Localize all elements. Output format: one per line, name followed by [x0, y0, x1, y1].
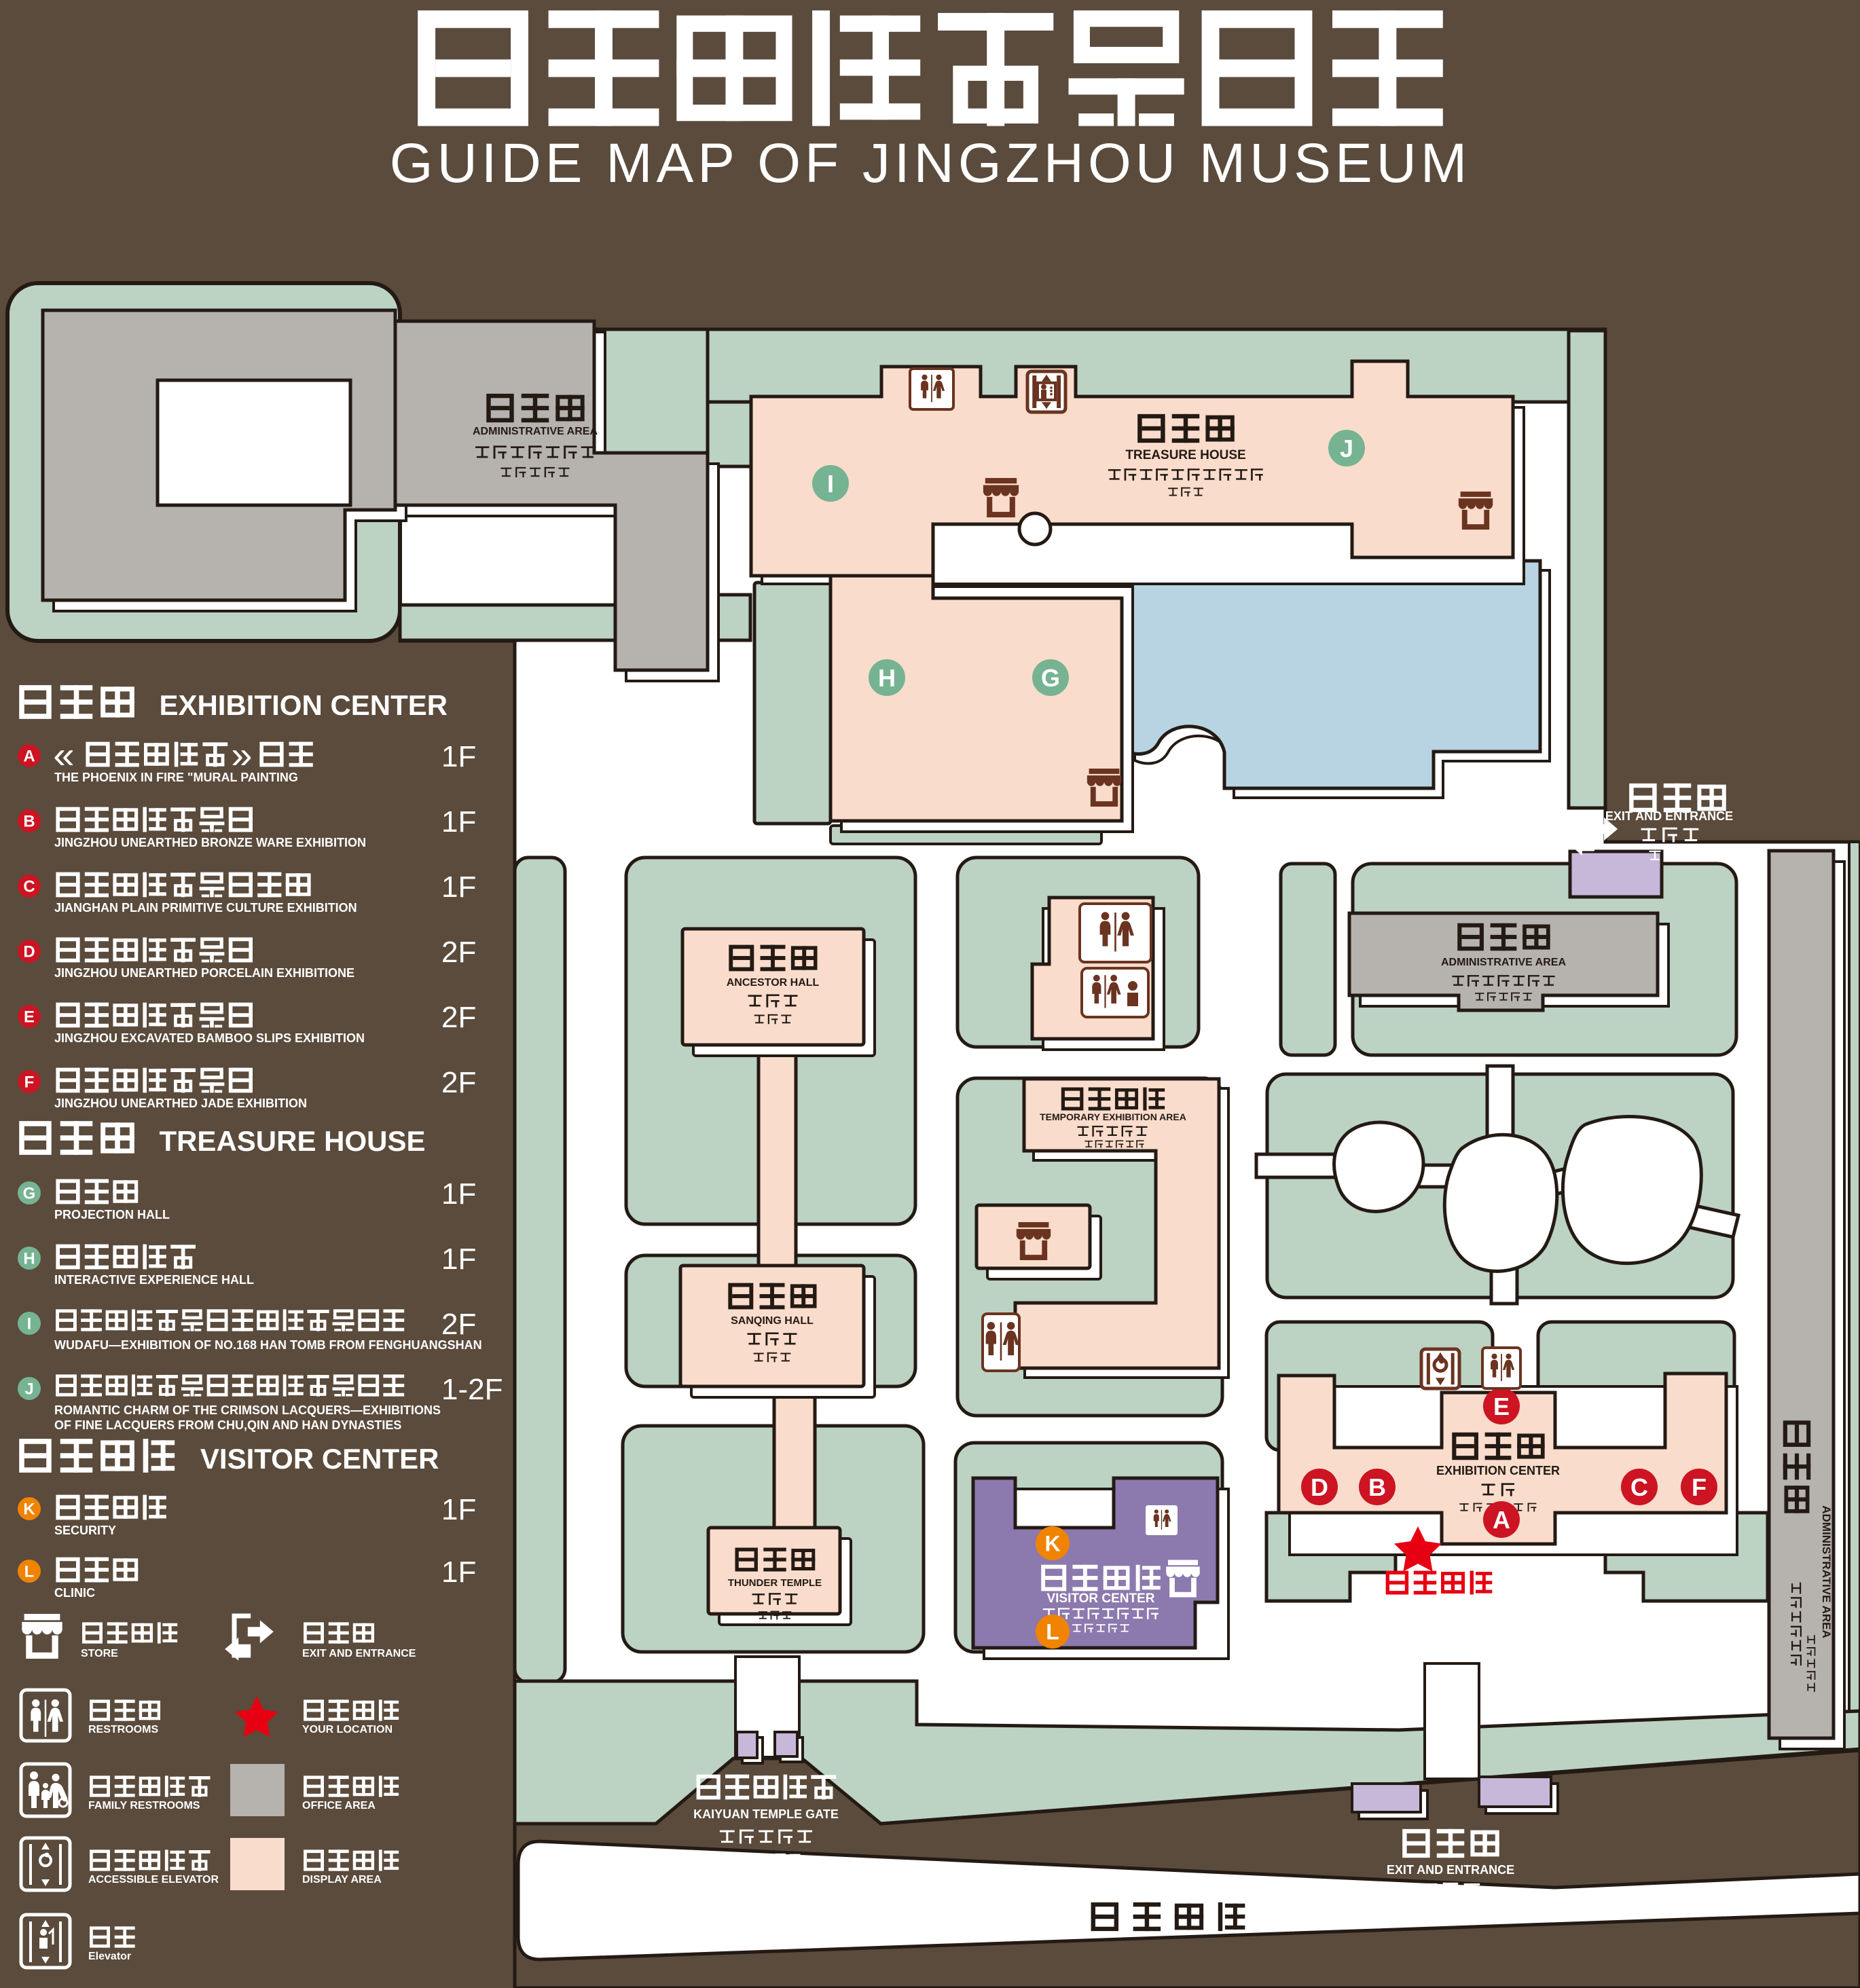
svg-text:2F: 2F	[441, 936, 476, 969]
svg-text:TREASURE HOUSE: TREASURE HOUSE	[1125, 448, 1245, 462]
svg-text:1F: 1F	[441, 805, 476, 839]
svg-text:C: C	[23, 878, 35, 896]
svg-text:1F: 1F	[441, 740, 476, 773]
svg-text:H: H	[878, 664, 896, 692]
svg-text:C: C	[1630, 1473, 1648, 1501]
svg-text:D: D	[1311, 1473, 1328, 1501]
svg-text:JINGZHOU UNEARTHED JADE EXHIBI: JINGZHOU UNEARTHED JADE EXHIBITION	[54, 1097, 307, 1110]
svg-text:E: E	[1493, 1393, 1510, 1420]
svg-text:F: F	[24, 1073, 35, 1092]
svg-text:FAMILY RESTROOMS: FAMILY RESTROOMS	[88, 1800, 200, 1811]
svg-text:EXIT AND ENTRANCE: EXIT AND ENTRANCE	[1387, 1863, 1514, 1877]
svg-text:1F: 1F	[441, 870, 476, 904]
svg-text:EXIT AND ENTRANCE: EXIT AND ENTRANCE	[1605, 809, 1733, 823]
svg-text:1F: 1F	[441, 1242, 476, 1276]
svg-text:CLINIC: CLINIC	[54, 1586, 95, 1600]
svg-text:G: G	[23, 1185, 36, 1203]
svg-text:JINGZHOU EXCAVATED BAMBOO SLIP: JINGZHOU EXCAVATED BAMBOO SLIPS EXHIBITI…	[54, 1031, 365, 1045]
svg-text:I: I	[827, 470, 834, 498]
svg-text:PROJECTION HALL: PROJECTION HALL	[54, 1208, 170, 1221]
svg-text:1F: 1F	[441, 1177, 476, 1211]
svg-text:RESTROOMS: RESTROOMS	[88, 1724, 158, 1735]
svg-text:A: A	[1493, 1506, 1510, 1534]
svg-text:YOUR LOCATION: YOUR LOCATION	[302, 1724, 393, 1735]
svg-text:VISITOR CENTER: VISITOR CENTER	[1046, 1591, 1154, 1606]
svg-text:2F: 2F	[441, 1066, 476, 1099]
svg-text:2F: 2F	[441, 1308, 476, 1341]
svg-text:J: J	[24, 1380, 33, 1399]
svg-text:1-2F: 1-2F	[441, 1373, 503, 1406]
svg-text:KAIYUAN TEMPLE GATE: KAIYUAN TEMPLE GATE	[693, 1807, 839, 1821]
svg-text:SANQING HALL: SANQING HALL	[731, 1315, 814, 1327]
svg-text:ROMANTIC CHARM OF THE CRIMSON: ROMANTIC CHARM OF THE CRIMSON LACQUERS—E…	[54, 1403, 441, 1417]
svg-text:TEMPORARY EXHIBITION AREA: TEMPORARY EXHIBITION AREA	[1040, 1111, 1186, 1122]
svg-text:DISPLAY AREA: DISPLAY AREA	[302, 1874, 382, 1885]
svg-text:JINGZHOU UNEARTHED BRONZE WARE: JINGZHOU UNEARTHED BRONZE WARE EXHIBITIO…	[54, 836, 366, 849]
svg-text:1F: 1F	[441, 1556, 476, 1589]
svg-text:B: B	[1368, 1473, 1386, 1501]
svg-text:INTERACTIVE EXPERIENCE HALL: INTERACTIVE EXPERIENCE HALL	[54, 1273, 254, 1287]
svg-text:EXIT AND ENTRANCE: EXIT AND ENTRANCE	[302, 1648, 416, 1659]
svg-text:ACCESSIBLE ELEVATOR: ACCESSIBLE ELEVATOR	[88, 1874, 219, 1885]
svg-text:K: K	[23, 1501, 35, 1519]
svg-text:VISITOR CENTER: VISITOR CENTER	[200, 1443, 439, 1475]
svg-text:1F: 1F	[441, 1493, 476, 1526]
svg-text:G: G	[1041, 664, 1060, 692]
svg-text:2F: 2F	[441, 1001, 476, 1034]
svg-text:SECURITY: SECURITY	[54, 1524, 116, 1537]
svg-text:ADMINISTRATIVE AREA: ADMINISTRATIVE AREA	[1820, 1505, 1833, 1638]
svg-text:L: L	[24, 1563, 35, 1581]
svg-text:JIANGHAN PLAIN PRIMITIVE CULTU: JIANGHAN PLAIN PRIMITIVE CULTURE EXHIBIT…	[54, 901, 357, 915]
svg-text:F: F	[1692, 1473, 1707, 1501]
svg-text:I: I	[27, 1315, 32, 1333]
svg-text:ADMINISTRATIVE AREA: ADMINISTRATIVE AREA	[473, 426, 598, 437]
svg-text:«: «	[53, 733, 74, 776]
svg-text:EXHIBITION CENTER: EXHIBITION CENTER	[159, 689, 448, 721]
svg-text:THE PHOENIX IN FIRE "MURAL PAI: THE PHOENIX IN FIRE "MURAL PAINTING	[54, 771, 298, 784]
svg-text:A: A	[23, 748, 35, 766]
svg-text:OFFICE AREA: OFFICE AREA	[302, 1800, 376, 1811]
svg-text:J: J	[1340, 435, 1353, 462]
svg-text:K: K	[1044, 1532, 1060, 1556]
svg-text:Elevator: Elevator	[88, 1951, 131, 1962]
svg-text:D: D	[23, 943, 35, 961]
svg-text:THUNDER TEMPLE: THUNDER TEMPLE	[728, 1577, 822, 1589]
svg-text:EXHIBITION CENTER: EXHIBITION CENTER	[1436, 1464, 1560, 1477]
svg-text:L: L	[1046, 1620, 1059, 1644]
svg-text:OF FINE LACQUERS FROM CHU,QIN: OF FINE LACQUERS FROM CHU,QIN AND HAN DY…	[54, 1418, 401, 1432]
svg-text:E: E	[24, 1008, 35, 1027]
svg-text:B: B	[23, 813, 35, 831]
svg-text:WUDAFU—EXHIBITION OF NO.168 HA: WUDAFU—EXHIBITION OF NO.168 HAN TOMB FRO…	[54, 1338, 482, 1352]
svg-text:ADMINISTRATIVE AREA: ADMINISTRATIVE AREA	[1441, 957, 1566, 968]
svg-text:ANCESTOR HALL: ANCESTOR HALL	[727, 977, 820, 989]
svg-text:TREASURE HOUSE: TREASURE HOUSE	[159, 1125, 425, 1157]
svg-text:»: »	[231, 733, 252, 776]
svg-text:JINGZHOU UNEARTHED PORCELAIN E: JINGZHOU UNEARTHED PORCELAIN EXHIBITIONE	[54, 966, 354, 980]
svg-text:STORE: STORE	[81, 1648, 118, 1659]
svg-text:H: H	[23, 1250, 35, 1268]
svg-text:GUIDE MAP OF JINGZHOU MUSEUM: GUIDE MAP OF JINGZHOU MUSEUM	[390, 132, 1471, 194]
